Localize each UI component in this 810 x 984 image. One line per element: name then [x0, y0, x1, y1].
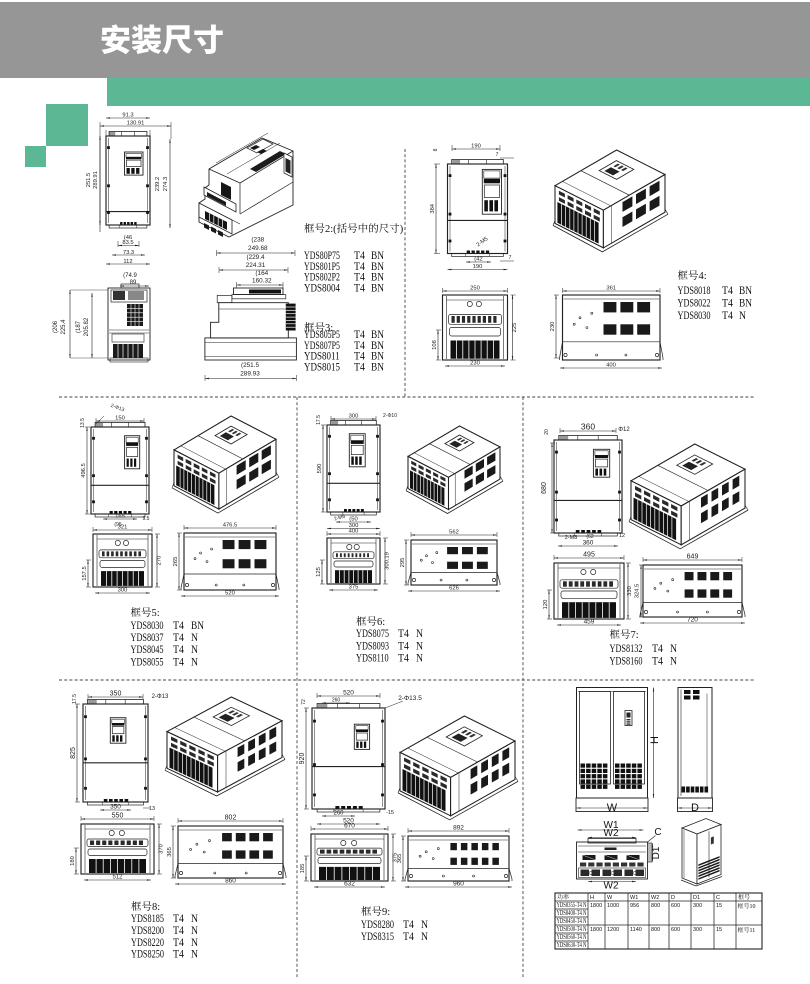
svg-text:H: H: [590, 895, 594, 901]
svg-text:270: 270: [157, 556, 163, 566]
svg-text:T4: T4: [173, 948, 184, 961]
svg-text:190: 190: [471, 143, 481, 149]
svg-text:512: 512: [112, 874, 123, 880]
svg-text:W1: W1: [630, 895, 638, 901]
svg-text:225: 225: [512, 323, 518, 333]
svg-text:YDS8250: YDS8250: [131, 948, 164, 961]
svg-text:YDS8055: YDS8055: [131, 656, 164, 669]
svg-text:13: 13: [149, 806, 155, 812]
svg-text:YDS8185: YDS8185: [131, 913, 164, 926]
svg-text:7:: 7:: [631, 630, 639, 641]
svg-text:T4: T4: [354, 282, 365, 295]
svg-text:130.91: 130.91: [127, 120, 145, 126]
svg-text:520: 520: [343, 689, 354, 696]
svg-text:Φ12: Φ12: [618, 427, 630, 433]
svg-text:BN: BN: [739, 284, 752, 297]
svg-text:BN: BN: [371, 281, 384, 294]
svg-text:YDS8037: YDS8037: [131, 632, 164, 645]
svg-text:YDS8004: YDS8004: [304, 282, 341, 294]
svg-text:185: 185: [300, 864, 306, 874]
svg-text:125: 125: [316, 567, 322, 577]
svg-text:600: 600: [671, 903, 680, 909]
svg-text:825: 825: [70, 747, 77, 759]
svg-text:YDS8132: YDS8132: [610, 643, 643, 656]
svg-text:274.3: 274.3: [163, 177, 169, 192]
svg-text:N: N: [421, 930, 428, 943]
svg-text:N: N: [416, 652, 423, 665]
svg-text:626: 626: [449, 585, 459, 591]
svg-text:YDS8560-T4 N: YDS8560-T4 N: [557, 934, 587, 941]
svg-text:265: 265: [173, 557, 179, 567]
svg-text:YDS8450-T4 N: YDS8450-T4 N: [557, 918, 587, 925]
svg-text:N: N: [670, 655, 677, 668]
svg-text:T4: T4: [652, 655, 663, 668]
svg-text:9.5: 9.5: [143, 516, 150, 522]
svg-text:350: 350: [110, 803, 121, 810]
svg-text:802: 802: [225, 814, 237, 821]
svg-text:(229.4: (229.4: [246, 254, 265, 261]
svg-text:6:: 6:: [377, 617, 385, 628]
svg-text:205.82: 205.82: [84, 317, 90, 336]
svg-text:W2: W2: [651, 895, 659, 901]
svg-text:7: 7: [496, 152, 499, 158]
svg-text:(42: (42: [474, 256, 482, 262]
svg-text:C: C: [716, 895, 720, 901]
svg-text:D1: D1: [651, 846, 662, 859]
svg-text:(238: (238: [251, 237, 264, 244]
svg-text:YDS8280: YDS8280: [361, 919, 394, 932]
svg-text:165: 165: [115, 513, 125, 519]
svg-text:YDS8630-T4 N: YDS8630-T4 N: [557, 942, 587, 949]
svg-text:289.91: 289.91: [93, 171, 99, 189]
svg-text:12: 12: [619, 533, 625, 539]
svg-text:224.31: 224.31: [246, 262, 266, 269]
svg-text:956: 956: [630, 903, 639, 909]
svg-text:17.5: 17.5: [316, 415, 322, 425]
svg-text:YDS8315: YDS8315: [361, 931, 394, 944]
svg-text:150: 150: [115, 415, 125, 421]
svg-text:365: 365: [397, 854, 403, 864]
svg-text:108: 108: [432, 340, 438, 350]
svg-text:YDS8022: YDS8022: [678, 297, 711, 310]
svg-text:860: 860: [225, 877, 236, 884]
svg-text:295: 295: [400, 558, 406, 568]
svg-text:250: 250: [470, 285, 480, 291]
svg-text:476.5: 476.5: [223, 522, 238, 528]
svg-text:W: W: [607, 802, 618, 814]
svg-text:T4: T4: [722, 309, 733, 322]
svg-text:17.5: 17.5: [72, 694, 78, 704]
svg-text:562: 562: [449, 529, 459, 535]
svg-text:400: 400: [349, 528, 359, 534]
svg-text:(164: (164: [255, 270, 268, 277]
svg-text:72: 72: [301, 699, 307, 705]
svg-text:321: 321: [118, 524, 128, 530]
svg-text:8: 8: [433, 148, 439, 151]
svg-text:300: 300: [693, 903, 702, 909]
svg-text:360: 360: [583, 539, 594, 546]
svg-text:1800: 1800: [590, 903, 602, 909]
svg-text:300: 300: [693, 927, 702, 933]
svg-text:360: 360: [581, 421, 595, 431]
svg-text:YDS8355-T4 N: YDS8355-T4 N: [557, 902, 587, 909]
svg-text:YDS8110: YDS8110: [356, 652, 389, 665]
svg-text:375: 375: [349, 584, 359, 590]
svg-text:D1: D1: [693, 895, 700, 901]
svg-text:BN: BN: [371, 360, 384, 373]
svg-text:T4: T4: [722, 297, 733, 310]
svg-text:225.4: 225.4: [61, 319, 67, 335]
svg-text:4:: 4:: [699, 271, 707, 282]
svg-text:W2: W2: [604, 828, 619, 839]
svg-text:10: 10: [750, 904, 756, 910]
svg-text:800: 800: [651, 903, 660, 909]
svg-text:300: 300: [118, 587, 128, 593]
svg-text:N: N: [416, 639, 423, 652]
svg-text:73.3: 73.3: [123, 250, 134, 256]
svg-text:N: N: [416, 627, 423, 640]
svg-text:): ): [400, 224, 404, 235]
svg-text:249.68: 249.68: [248, 245, 268, 252]
svg-text:T4: T4: [398, 652, 409, 665]
svg-text:112: 112: [123, 259, 132, 265]
svg-text:YDS8030: YDS8030: [131, 620, 164, 633]
svg-text:180: 180: [70, 856, 76, 866]
svg-text:361: 361: [606, 285, 616, 291]
svg-text:550: 550: [112, 812, 124, 819]
svg-text:N: N: [670, 642, 677, 655]
svg-text:920: 920: [299, 753, 306, 765]
svg-text:15: 15: [716, 903, 722, 909]
svg-text:2-M8: 2-M8: [565, 535, 578, 541]
svg-text:YDS8160: YDS8160: [610, 655, 643, 668]
svg-text:459: 459: [584, 618, 595, 625]
svg-text:83.5: 83.5: [122, 240, 133, 246]
svg-text:600: 600: [671, 927, 680, 933]
svg-text:632: 632: [344, 880, 355, 887]
svg-text:670: 670: [344, 822, 355, 829]
svg-text:89: 89: [130, 280, 137, 286]
svg-text:5:: 5:: [152, 608, 160, 619]
svg-text:892: 892: [453, 824, 464, 831]
svg-text:230: 230: [470, 360, 480, 366]
svg-text:YDS8400-T4 N: YDS8400-T4 N: [557, 910, 587, 917]
svg-text:496.5: 496.5: [81, 463, 87, 478]
svg-text:1000: 1000: [607, 903, 619, 909]
svg-text:W: W: [607, 895, 613, 901]
svg-text:T4: T4: [398, 627, 409, 640]
svg-text:330: 330: [627, 586, 633, 596]
svg-text:(50: (50: [349, 516, 357, 522]
svg-text:(251.5: (251.5: [241, 362, 260, 369]
svg-text:649: 649: [687, 553, 699, 560]
svg-text:13.5: 13.5: [80, 418, 86, 428]
svg-text:400: 400: [606, 362, 616, 368]
svg-text:2-Φ13.5: 2-Φ13.5: [398, 695, 422, 702]
svg-text:YDS8018: YDS8018: [678, 285, 711, 298]
svg-text:(74.9: (74.9: [123, 273, 137, 279]
svg-text:T4: T4: [403, 930, 414, 943]
svg-text:1800: 1800: [590, 927, 602, 933]
svg-text:365: 365: [167, 847, 173, 857]
svg-text:T4: T4: [354, 361, 365, 374]
svg-text:1200: 1200: [607, 927, 619, 933]
svg-text:N: N: [191, 948, 198, 961]
svg-text:1140: 1140: [630, 927, 642, 933]
svg-text:YDS8045: YDS8045: [131, 644, 164, 657]
svg-text:350: 350: [110, 690, 122, 697]
svg-text:495: 495: [583, 551, 595, 558]
svg-text:W2: W2: [604, 881, 619, 892]
svg-text:YDS8093: YDS8093: [356, 640, 389, 653]
svg-text:YDS8220: YDS8220: [131, 936, 164, 949]
svg-text:190: 190: [473, 264, 483, 270]
svg-text:2:(: 2:(: [325, 224, 337, 235]
svg-text:(187: (187: [76, 320, 82, 333]
svg-text:T4: T4: [722, 284, 733, 297]
svg-text:T4: T4: [398, 639, 409, 652]
svg-text:20: 20: [544, 429, 550, 435]
svg-text:300: 300: [349, 413, 359, 419]
svg-text:520: 520: [225, 590, 235, 596]
svg-text:T4: T4: [173, 655, 184, 668]
svg-text:590: 590: [317, 464, 323, 474]
svg-text:-15: -15: [386, 810, 394, 816]
svg-text:720: 720: [687, 616, 698, 623]
svg-text:T4: T4: [652, 642, 663, 655]
svg-text:YDS8015: YDS8015: [304, 361, 340, 373]
svg-text:7: 7: [509, 255, 512, 261]
svg-text:251.5: 251.5: [86, 173, 92, 188]
svg-text:324.5: 324.5: [635, 584, 641, 599]
svg-text:680: 680: [541, 482, 548, 494]
svg-text:15: 15: [716, 927, 722, 933]
svg-text:800: 800: [651, 927, 660, 933]
svg-text:260: 260: [332, 697, 341, 703]
svg-text:370: 370: [159, 844, 165, 854]
svg-text:N: N: [739, 309, 746, 322]
svg-text:D: D: [691, 802, 699, 814]
svg-text:D: D: [671, 895, 675, 901]
svg-text:8:: 8:: [152, 902, 160, 913]
svg-text:384: 384: [430, 203, 436, 213]
svg-text:C: C: [654, 827, 661, 838]
svg-text:(206: (206: [53, 320, 59, 333]
svg-text:YDS8500-T4 N: YDS8500-T4 N: [557, 926, 587, 933]
svg-text:230: 230: [550, 322, 556, 332]
svg-text:BN: BN: [739, 296, 752, 309]
svg-text:YDS8200: YDS8200: [131, 925, 164, 938]
svg-text:120: 120: [543, 600, 549, 610]
svg-text:11: 11: [750, 928, 756, 934]
svg-text:YDS8030: YDS8030: [678, 309, 711, 322]
svg-text:YDS8075: YDS8075: [356, 628, 389, 641]
svg-text:239.2: 239.2: [155, 177, 161, 192]
svg-text:300.19: 300.19: [385, 552, 391, 570]
svg-text:2-Φ13: 2-Φ13: [152, 694, 169, 700]
svg-text:157.5: 157.5: [82, 566, 88, 581]
svg-text:260: 260: [333, 810, 344, 816]
svg-text:9:: 9:: [382, 907, 390, 918]
svg-text:N: N: [191, 655, 198, 668]
svg-text:289.93: 289.93: [240, 371, 260, 378]
svg-text:H: H: [649, 736, 661, 744]
svg-text:2-Φ10: 2-Φ10: [383, 413, 397, 419]
svg-text:160.32: 160.32: [252, 278, 272, 285]
svg-text:960: 960: [453, 880, 464, 887]
svg-text:91.3: 91.3: [122, 112, 133, 118]
